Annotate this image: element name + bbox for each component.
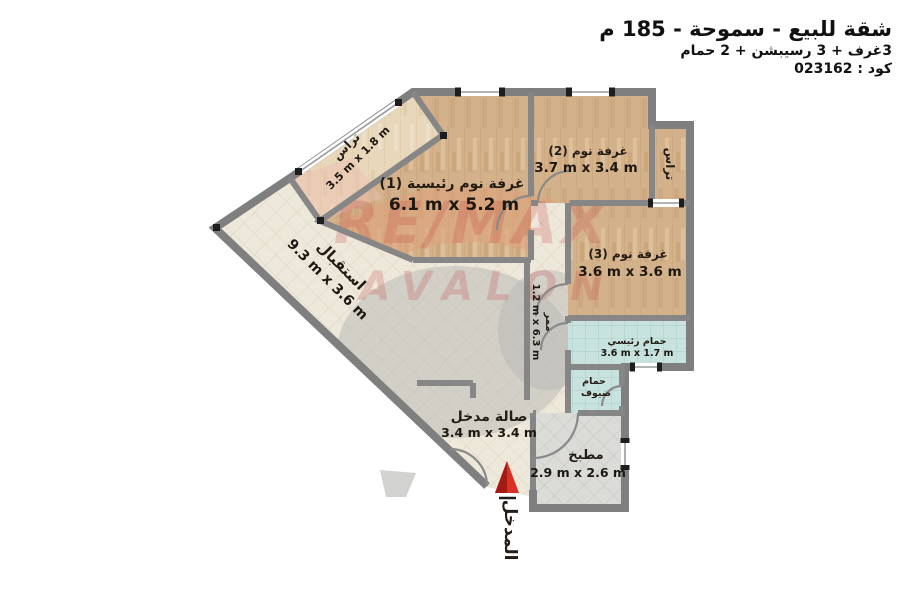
label-guest-bath-1: حمام <box>582 376 606 387</box>
svg-text:ممر: ممر <box>543 311 554 331</box>
label-entrance: المدخل <box>500 500 520 561</box>
window-top-2 <box>566 88 615 97</box>
dims-master-bath: 3.6 m x 1.7 m <box>601 348 674 359</box>
svg-text:1.2 m x 6.3 m: 1.2 m x 6.3 m <box>530 284 541 361</box>
label-hall: صالة مدخل <box>451 409 528 425</box>
label-guest-bath-2: ضيوف <box>581 388 611 399</box>
listing-title: شقة للبيع - سموحة - 185 م <box>599 16 892 42</box>
label-master-bath: حمام رئيسي <box>607 336 666 347</box>
dims-master-bedroom: 6.1 m x 5.2 m <box>389 195 519 215</box>
listing-subtitle: 3غرف + 3 رسيبشن + 2 حمام <box>599 42 892 60</box>
label-master-bedroom: غرفة نوم رئيسية (1) <box>380 176 525 192</box>
window-master-bath <box>630 363 662 372</box>
dims-kitchen: 2.9 m x 2.6 m <box>530 465 626 480</box>
dims-hall: 3.4 m x 3.4 m <box>441 425 537 440</box>
floor-plan-page: شقة للبيع - سموحة - 185 م 3غرف + 3 رسيبش… <box>0 0 900 599</box>
label-bedroom3: غرفة نوم (3) <box>588 247 667 262</box>
watermark-blob-outside <box>380 470 416 497</box>
label-terrace-right: تراس <box>663 148 677 181</box>
window-terrace-right <box>648 199 684 208</box>
window-top-1 <box>455 88 505 97</box>
dims-bedroom2: 3.7 m x 3.4 m <box>534 160 637 176</box>
label-kitchen: مطبخ <box>568 448 603 463</box>
label-bedroom2: غرفة نوم (2) <box>548 144 627 159</box>
wall-joint-mark <box>317 217 324 224</box>
dims-bedroom3: 3.6 m x 3.6 m <box>578 264 681 280</box>
floor-plan-canvas: RE/MAX AVALON <box>0 0 900 599</box>
svg-text:تراس: تراس <box>663 148 677 181</box>
wall-joint-mark <box>213 224 220 231</box>
wall-joint-mark <box>440 132 447 139</box>
listing-code: كود : 023162 <box>599 60 892 78</box>
listing-header: شقة للبيع - سموحة - 185 م 3غرف + 3 رسيبش… <box>599 16 892 79</box>
svg-text:المدخل: المدخل <box>500 500 520 561</box>
